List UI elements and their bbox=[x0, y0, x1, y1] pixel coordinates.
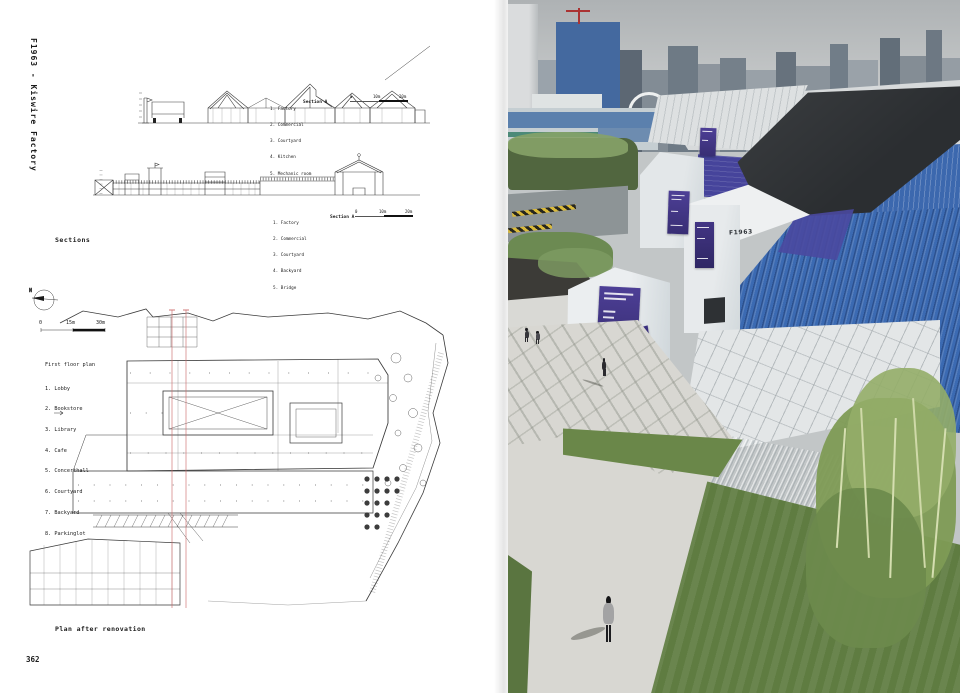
wall-sign-f1963: F1963 bbox=[729, 228, 753, 236]
banner-text-line bbox=[603, 310, 615, 312]
banner-purple-top bbox=[700, 128, 717, 157]
photo-f1963-complex: F1963 bbox=[508, 0, 960, 693]
banner-text-line bbox=[671, 195, 685, 197]
banner-text-line bbox=[702, 131, 712, 132]
pedestrian bbox=[535, 331, 540, 344]
section-b-label: Section A bbox=[330, 215, 354, 220]
banner-text-line bbox=[697, 258, 707, 259]
scale-thick bbox=[384, 215, 413, 218]
banner-text-line bbox=[670, 225, 683, 226]
scale-thick bbox=[379, 100, 408, 103]
bamboo-row bbox=[508, 132, 628, 158]
plan-caption: Plan after renovation bbox=[55, 625, 146, 633]
hall-b-entry bbox=[704, 297, 725, 324]
banner-text-line bbox=[603, 316, 614, 318]
walking-woman bbox=[602, 596, 615, 642]
banner-purple-small bbox=[695, 222, 714, 268]
floor-plan-legend: First floor plan 1. Lobby 2. Bookstore 3… bbox=[45, 348, 95, 551]
banner-purple-small bbox=[667, 191, 689, 235]
sections-caption: Sections bbox=[55, 236, 90, 244]
banner-text-line bbox=[604, 292, 633, 295]
pedestrian bbox=[524, 328, 529, 342]
banner-text-line bbox=[671, 211, 678, 212]
page-number: 362 bbox=[26, 655, 40, 664]
banner-text-line bbox=[702, 140, 708, 141]
spine-title: F1963 - Kiswire Factory bbox=[29, 38, 38, 208]
left-page: F1963 - Kiswire Factory Sections bbox=[0, 0, 508, 693]
banner-text-line bbox=[604, 297, 627, 300]
svg-text:0: 0 bbox=[39, 320, 42, 326]
bamboo-grove bbox=[806, 368, 960, 658]
banner-text-line bbox=[697, 238, 705, 239]
section-b-drawing bbox=[85, 150, 425, 205]
banner-text-line bbox=[697, 227, 708, 228]
book-spread: F1963 - Kiswire Factory Sections bbox=[0, 0, 960, 693]
floor-plan-title: First floor plan bbox=[45, 362, 95, 369]
banner-text-line bbox=[671, 199, 682, 201]
small-trees bbox=[538, 248, 613, 278]
crane-arm bbox=[566, 10, 590, 12]
pedestrian bbox=[601, 358, 607, 376]
svg-text:30m: 30m bbox=[96, 320, 105, 326]
north-label: N bbox=[29, 288, 32, 294]
section-a-label: Section A bbox=[303, 100, 327, 105]
svg-text:15m: 15m bbox=[66, 320, 75, 326]
